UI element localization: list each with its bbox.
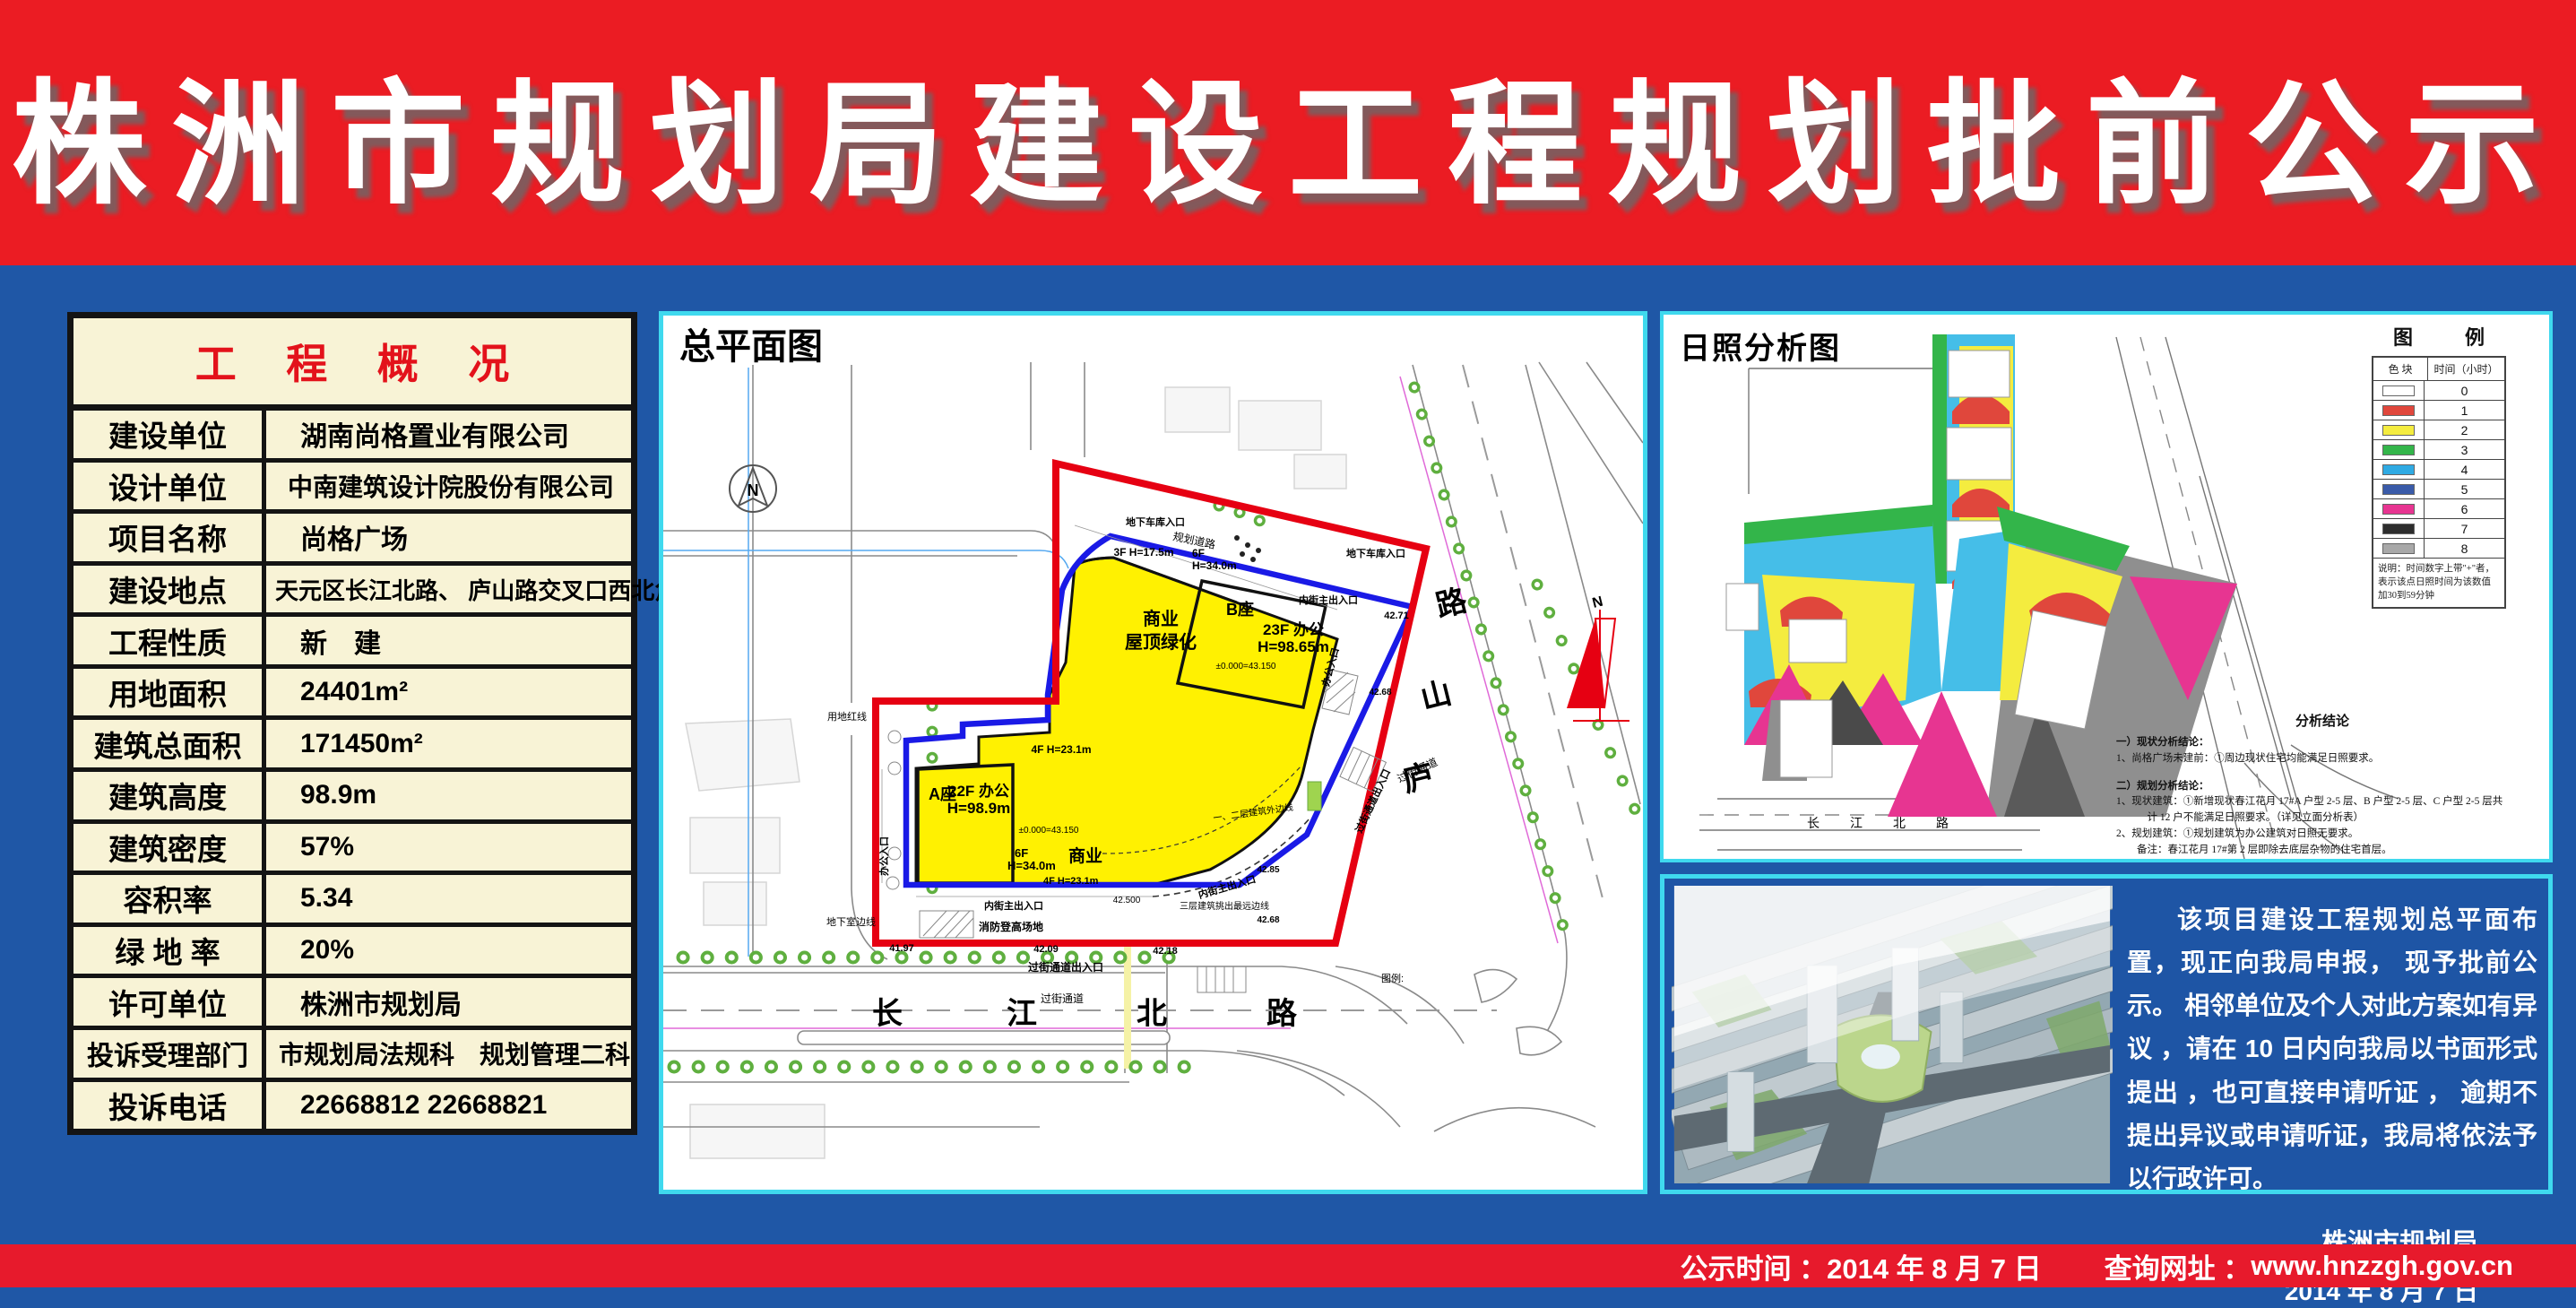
svg-text:H=34.0m: H=34.0m [1192, 559, 1237, 572]
notice-board: { "banner": { "title": "株洲市规划局建设工程规划批前公示… [0, 0, 2576, 1287]
row-value: 株洲市规划局 [266, 978, 631, 1026]
table-row: 许可单位 株洲市规划局 [73, 978, 631, 1030]
north-arrow-red-icon: N [1567, 594, 1629, 721]
conclusion-lines: 一）现状分析结论：1、尚格广场未建前：①周边现状住宅均能满足日照要求。二）规划分… [2116, 735, 2528, 859]
svg-text:江: 江 [1007, 997, 1037, 1031]
svg-text:42.68: 42.68 [1257, 915, 1279, 925]
svg-text:23F 办公: 23F 办公 [1263, 620, 1324, 638]
table-row: 建筑密度 57% [73, 824, 631, 876]
legend-header-color: 色 块 [2373, 358, 2428, 380]
row-label: 用地面积 [73, 669, 266, 716]
svg-text:B座: B座 [1226, 600, 1254, 619]
banner-title: 株洲市规划局建设工程规划批前公示 [12, 36, 2564, 230]
svg-text:办公入口: 办公入口 [877, 836, 890, 876]
legend-color-swatch [2382, 425, 2415, 436]
row-value: 98.9m [266, 772, 631, 819]
svg-text:图例:: 图例: [1381, 972, 1404, 984]
legend-title: 图 例 [2372, 322, 2506, 351]
legend-color-swatch [2382, 405, 2415, 416]
legend-note: 说明：时间数字上带"+"者，表示该点日照时间为该数值加30到59分钟 [2373, 559, 2504, 607]
legend-hours-value: 8 [2425, 539, 2504, 558]
table-row: 容积率 5.34 [73, 875, 631, 927]
conclusion-line: 二）规划分析结论： [2116, 779, 2528, 795]
legend-row: 4 [2373, 460, 2504, 480]
row-value: 中南建筑设计院股份有限公司 [266, 463, 631, 510]
notice-paragraph: 该项目建设工程规划总平面布置，现正向我局申报， 现予批前公示。 相邻单位及个人对… [2127, 898, 2537, 1200]
row-value: 天元区长江北路、 庐山路交叉口西北角 [266, 566, 678, 613]
svg-text:商业: 商业 [1143, 608, 1179, 629]
svg-text:三层建筑挑出最远边线: 三层建筑挑出最远边线 [1180, 900, 1269, 912]
svg-text:42.09: 42.09 [1033, 944, 1059, 955]
legend-rows: 0 1 2 3 [2373, 381, 2504, 559]
legend-hours-value: 0 [2425, 381, 2504, 400]
legend-row: 2 [2373, 420, 2504, 440]
row-label: 工程性质 [73, 617, 266, 664]
svg-text:地下车库入口: 地下车库入口 [1346, 547, 1405, 559]
legend-color-swatch [2382, 385, 2415, 396]
sunlight-title: 日照分析图 [1680, 324, 1841, 368]
legend-row: 6 [2373, 499, 2504, 519]
sunlight-analysis-panel: 长 江 北 路 日照分析图 图 例 色 块 时间（小时） 0 [1660, 311, 2553, 862]
legend-row: 3 [2373, 440, 2504, 460]
sunlight-legend: 图 例 色 块 时间（小时） 0 1 [2372, 322, 2506, 609]
row-label: 许可单位 [73, 978, 266, 1026]
svg-text:路: 路 [1266, 997, 1298, 1031]
notice-panel: 该项目建设工程规划总平面布置，现正向我局申报， 现予批前公示。 相邻单位及个人对… [1660, 874, 2553, 1194]
legend-color-swatch [2382, 464, 2415, 475]
svg-text:用地红线: 用地红线 [827, 710, 867, 723]
banner: 株洲市规划局建设工程规划批前公示 [0, 0, 2576, 265]
row-value: 57% [266, 824, 631, 871]
legend-header: 色 块 时间（小时） [2373, 358, 2504, 381]
row-label: 投诉受理部门 [73, 1030, 266, 1078]
legend-row: 7 [2373, 519, 2504, 539]
row-value: 171450m² [266, 720, 631, 767]
svg-text:内街主出入口: 内街主出入口 [1299, 593, 1358, 606]
legend-hours-value: 2 [2425, 420, 2504, 439]
conclusion-line [2116, 767, 2528, 779]
legend-hours-value: 1 [2425, 401, 2504, 420]
row-label: 容积率 [73, 875, 266, 923]
legend-color-swatch [2382, 445, 2415, 455]
row-label: 建设单位 [73, 411, 266, 458]
conclusion-line: 1、现状建筑：①新增现状春江花月 17#A 户型 2-5 层、B 户型 2-5 … [2116, 794, 2528, 810]
site-plan-title: 总平面图 [679, 327, 823, 367]
svg-text:42.68: 42.68 [1369, 688, 1391, 697]
legend-row: 8 [2373, 539, 2504, 559]
svg-text:4F H=23.1m: 4F H=23.1m [1043, 876, 1099, 887]
table-title: 工 程 概 况 [73, 318, 631, 411]
legend-header-hours: 时间（小时） [2428, 358, 2504, 380]
legend-row: 1 [2373, 401, 2504, 420]
table-row: 项目名称 尚格广场 [73, 514, 631, 566]
legend-hours-value: 6 [2425, 499, 2504, 518]
rendering-image [1672, 886, 2113, 1183]
svg-text:22F 办公: 22F 办公 [948, 782, 1009, 800]
row-label: 项目名称 [73, 514, 266, 561]
svg-text:商业: 商业 [1068, 845, 1102, 866]
svg-text:路: 路 [1432, 584, 1471, 624]
table-row: 建筑总面积 171450m² [73, 720, 631, 772]
north-letter: N [748, 481, 759, 499]
svg-text:过街通道出入口: 过街通道出入口 [1028, 960, 1103, 974]
svg-text:42.85: 42.85 [1257, 865, 1279, 875]
project-rendering [1672, 886, 2113, 1183]
legend-hours-value: 5 [2425, 480, 2504, 498]
conclusion-line: 备注：春江花月 17#第 2 层即除去底层杂物的住宅首层。 [2116, 843, 2528, 859]
sun-road-label: 长 江 北 路 [1807, 816, 1958, 830]
svg-text:过街通道: 过街通道 [1041, 992, 1084, 1005]
row-label: 建筑密度 [73, 824, 266, 871]
table-row: 用地面积 24401m² [73, 669, 631, 721]
site-plan-panel: N N 总平面图 商业 屋顶绿化 B座 23F 办公 H=98.65m 3F H… [659, 311, 1647, 1194]
table-row: 建设单位 湖南尚格置业有限公司 [73, 411, 631, 463]
svg-text:H=98.65m: H=98.65m [1258, 638, 1329, 655]
row-label: 绿 地 率 [73, 927, 266, 975]
legend-color-swatch [2382, 484, 2415, 495]
svg-text:屋顶绿化: 屋顶绿化 [1125, 631, 1197, 653]
row-value: 20% [266, 927, 631, 975]
svg-text:N: N [1591, 594, 1604, 611]
publish-time-label: 公示时间 ： [1680, 1246, 1827, 1286]
table-row: 建设地点 天元区长江北路、 庐山路交叉口西北角 [73, 566, 631, 618]
publish-time-value: 2014 年 8 月 7 日 [1827, 1246, 2042, 1286]
table-row: 工程性质 新 建 [73, 617, 631, 669]
svg-text:消防登高场地: 消防登高场地 [979, 920, 1043, 933]
conclusion-title: 分析结论 [2116, 711, 2528, 730]
row-label: 建设地点 [73, 566, 266, 613]
legend-hours-value: 4 [2425, 460, 2504, 479]
legend-color-swatch [2382, 524, 2415, 534]
svg-text:±0.000=43.150: ±0.000=43.150 [1019, 826, 1079, 836]
legend-row: 5 [2373, 480, 2504, 499]
site-plan-drawing: N N 总平面图 商业 屋顶绿化 B座 23F 办公 H=98.65m 3F H… [663, 316, 1643, 1190]
svg-text:山: 山 [1417, 676, 1455, 716]
table-row: 绿 地 率 20% [73, 927, 631, 979]
row-value: 22668812 22668821 [266, 1082, 631, 1130]
legend-color-swatch [2382, 543, 2415, 554]
svg-text:H=98.9m: H=98.9m [947, 800, 1010, 817]
svg-text:长: 长 [872, 997, 903, 1031]
conclusion-line: 2、规划建筑：①规划建筑为办公建筑对日照无要求。 [2116, 827, 2528, 843]
svg-text:42.71: 42.71 [1384, 611, 1409, 621]
query-url-label: 查询网址 ： [2105, 1246, 2252, 1286]
row-value: 湖南尚格置业有限公司 [266, 411, 631, 458]
row-value: 5.34 [266, 875, 631, 923]
row-value: 新 建 [266, 617, 631, 664]
svg-text:内街主出入口: 内街主出入口 [984, 899, 1043, 912]
footer-bar: 公示时间 ： 2014 年 8 月 7 日 查询网址 ： www.hnzzgh.… [0, 1244, 2576, 1287]
row-label: 设计单位 [73, 463, 266, 510]
query-url-value: www.hnzzgh.gov.cn [2251, 1250, 2513, 1282]
legend-hours-value: 7 [2425, 519, 2504, 538]
row-value: 尚格广场 [266, 514, 631, 561]
svg-text:4F H=23.1m: 4F H=23.1m [1031, 743, 1091, 756]
row-label: 建筑高度 [73, 772, 266, 819]
legend-hours-value: 3 [2425, 440, 2504, 459]
table-row: 设计单位 中南建筑设计院股份有限公司 [73, 463, 631, 515]
svg-text:42.500: 42.500 [1113, 896, 1141, 905]
row-label: 投诉电话 [73, 1082, 266, 1130]
table-row: 投诉电话 22668812 22668821 [73, 1082, 631, 1130]
conclusion-line: 计 12 户不能满足日照要求。（详见立面分析表） [2116, 810, 2528, 827]
analysis-conclusion: 分析结论 一）现状分析结论：1、尚格广场未建前：①周边现状住宅均能满足日照要求。… [2116, 711, 2528, 859]
legend-color-swatch [2382, 504, 2415, 515]
legend-table: 色 块 时间（小时） 0 1 [2372, 356, 2506, 609]
legend-row: 0 [2373, 381, 2504, 401]
row-value: 市规划局法规科 规划管理二科 [266, 1030, 631, 1078]
conclusion-line: 1、尚格广场未建前：①周边现状住宅均能满足日照要求。 [2116, 751, 2528, 767]
table-row: 投诉受理部门 市规划局法规科 规划管理二科 [73, 1030, 631, 1082]
svg-text:北: 北 [1137, 997, 1167, 1031]
table-row: 建筑高度 98.9m [73, 772, 631, 824]
svg-text:H=34.0m: H=34.0m [1007, 859, 1056, 872]
row-label: 建筑总面积 [73, 720, 266, 767]
svg-text:地下室边线: 地下室边线 [826, 915, 876, 928]
tree-dots-dark [1234, 535, 1261, 562]
svg-text:3F H=17.5m: 3F H=17.5m [1113, 546, 1173, 559]
svg-text:地下车库入口: 地下车库入口 [1126, 515, 1185, 528]
row-value: 24401m² [266, 669, 631, 716]
conclusion-line: 一）现状分析结论： [2116, 735, 2528, 751]
svg-text:±0.000=43.150: ±0.000=43.150 [1216, 662, 1276, 671]
svg-text:42.18: 42.18 [1153, 946, 1178, 957]
svg-text:41.97: 41.97 [889, 943, 914, 954]
svg-text:6F: 6F [1015, 846, 1028, 860]
project-overview-table: 工 程 概 况 建设单位 湖南尚格置业有限公司 设计单位 中南建筑设计院股份有限… [67, 312, 637, 1135]
